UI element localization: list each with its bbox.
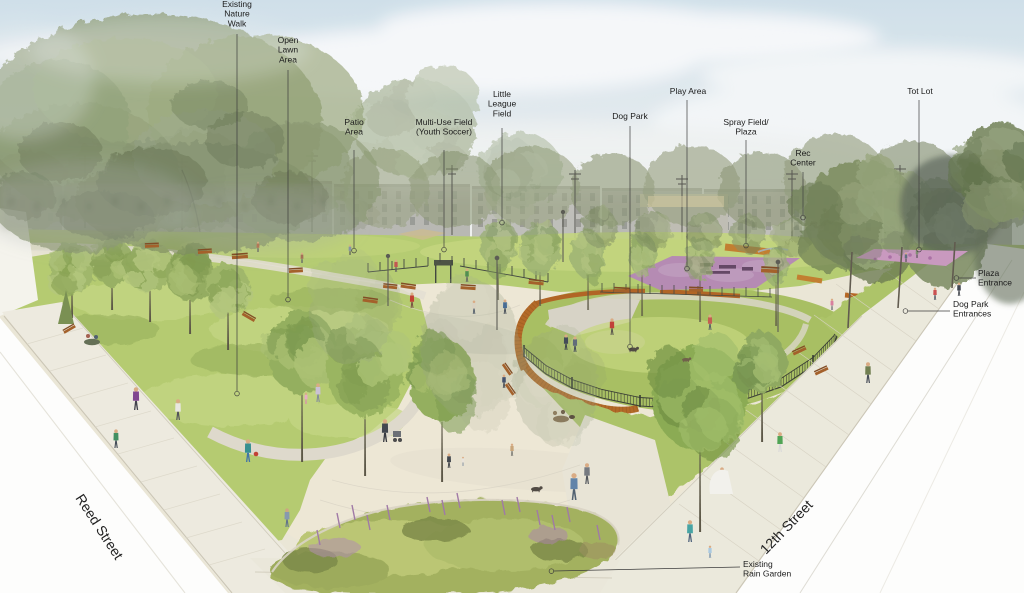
svg-text:Dog ParkEntrances: Dog ParkEntrances: [953, 299, 991, 319]
svg-text:OpenLawnArea: OpenLawnArea: [278, 35, 299, 64]
svg-text:Multi-Use Field(Youth Soccer): Multi-Use Field(Youth Soccer): [416, 117, 473, 137]
svg-text:Dog Park: Dog Park: [612, 111, 648, 121]
svg-text:Tot Lot: Tot Lot: [907, 86, 933, 96]
svg-text:PatioArea: PatioArea: [344, 117, 364, 137]
svg-text:Play Area: Play Area: [670, 86, 707, 96]
